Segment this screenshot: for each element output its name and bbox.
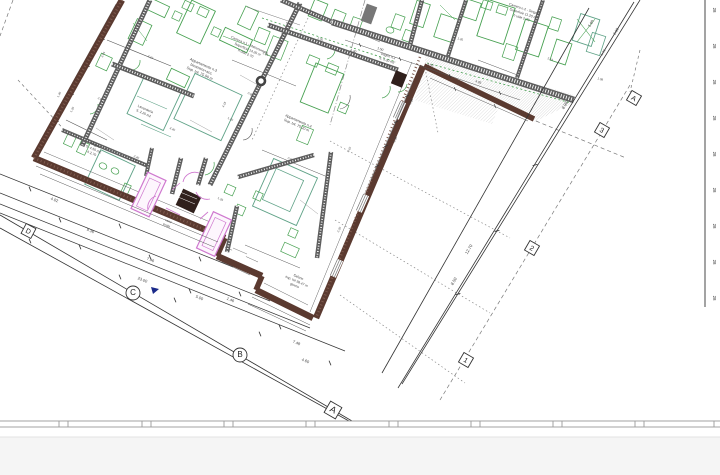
svg-text:28: 28: [712, 296, 717, 301]
svg-text:28: 28: [712, 44, 717, 49]
svg-text:28: 28: [712, 260, 717, 265]
svg-text:28: 28: [712, 8, 717, 13]
svg-text:C: C: [130, 288, 136, 297]
svg-text:28: 28: [712, 224, 717, 229]
svg-text:28: 28: [712, 152, 717, 157]
svg-text:B: B: [237, 350, 242, 359]
svg-text:28: 28: [712, 188, 717, 193]
svg-text:28: 28: [712, 116, 717, 121]
svg-text:28: 28: [712, 80, 717, 85]
